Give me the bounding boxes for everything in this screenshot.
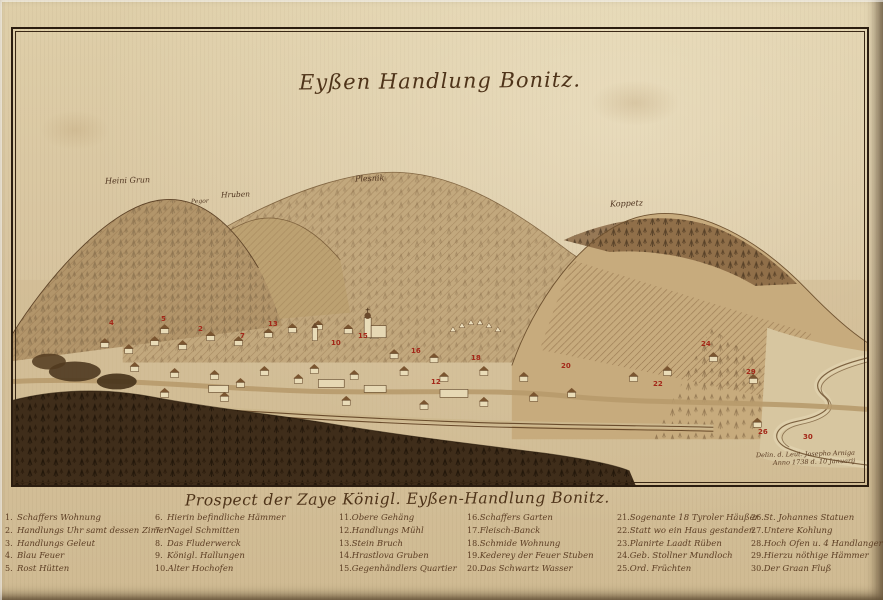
- legend-item-number: 23.: [617, 538, 630, 551]
- legend-item: 14.Hrastlova Gruben: [339, 550, 467, 563]
- legend-item: 28.Hoch Ofen u. 4 Handlangern: [751, 538, 881, 551]
- map-title: Eyßen Handlung Bonitz.: [13, 65, 867, 98]
- legend-item: 7.Nagel Schmitten: [155, 525, 339, 538]
- scanned-map-page: Eyßen Handlung Bonitz. Heini GrunPegorHr…: [0, 0, 883, 600]
- legend-item-text: Hierzu nöthige Hämmer: [764, 551, 869, 561]
- legend-columns: 1.Schaffers Wohnung2.Handlungs Uhr samt …: [5, 512, 881, 576]
- artist-signature: Delin. d. Leut. Josepho Arniga Anno 1738…: [756, 449, 855, 468]
- legend-column-4: 16.Schaffers Garten17.Fleisch-Banck18.Sc…: [467, 512, 617, 576]
- legend-item-number: 22.: [617, 525, 630, 538]
- legend-item: 27.Untere Kohlung: [751, 525, 881, 538]
- legend-item: 2.Handlungs Uhr samt dessen Zimer: [5, 525, 155, 538]
- legend-item: 11.Obere Gehäng: [339, 512, 467, 525]
- legend-item-text: Hoch Ofen u. 4 Handlangern: [764, 539, 883, 549]
- legend-item-text: Nagel Schmitten: [167, 526, 240, 536]
- legend-item-number: 17.: [467, 525, 480, 538]
- map-marker-number: 18: [471, 354, 481, 362]
- legend-item-text: Hierin befindliche Hämmer: [167, 513, 285, 523]
- legend-item-number: 15.: [339, 563, 352, 576]
- legend-item-text: Das Schwartz Wasser: [480, 564, 573, 574]
- legend-item-text: Königl. Hallungen: [167, 551, 245, 561]
- legend-item: 12.Handlungs Mühl: [339, 525, 467, 538]
- legend-item-text: Der Graan Fluß: [764, 564, 832, 574]
- legend-item: 19.Kederey der Feuer Stuben: [467, 550, 617, 563]
- legend-item-text: Stein Bruch: [352, 539, 403, 549]
- annotation-overlay: Eyßen Handlung Bonitz. Heini GrunPegorHr…: [13, 29, 867, 485]
- legend-item-text: Geb. Stollner Mundloch: [630, 551, 733, 561]
- legend-item-number: 4.: [5, 550, 17, 563]
- legend-item-number: 8.: [155, 538, 167, 551]
- legend-item-text: Schaffers Garten: [480, 513, 553, 523]
- legend-item-number: 30.: [751, 563, 764, 576]
- legend-item-number: 19.: [467, 550, 480, 563]
- legend-item-text: Kederey der Feuer Stuben: [480, 551, 594, 561]
- legend-item-text: Das Fluderwerck: [167, 539, 241, 549]
- legend-item-number: 14.: [339, 550, 352, 563]
- legend-item-text: Schmide Wohnung: [480, 539, 561, 549]
- hill-label: Hruben: [221, 189, 250, 199]
- legend-item-number: 7.: [155, 525, 167, 538]
- legend-item: 24.Geb. Stollner Mundloch: [617, 550, 751, 563]
- legend-item: 16.Schaffers Garten: [467, 512, 617, 525]
- legend-item-number: 25.: [617, 563, 630, 576]
- legend-item-text: Handlungs Uhr samt dessen Zimer: [17, 526, 168, 536]
- hill-label: Heini Grun: [105, 175, 150, 186]
- map-marker-number: 24: [701, 340, 711, 348]
- legend-item-number: 24.: [617, 550, 630, 563]
- legend-item-text: Statt wo ein Haus gestanden: [630, 526, 755, 536]
- legend-item-text: Alter Hochofen: [168, 564, 234, 574]
- legend-item-text: Planirte Laadt Rüben: [630, 539, 722, 549]
- drawing-frame: Eyßen Handlung Bonitz. Heini GrunPegorHr…: [11, 27, 869, 487]
- map-marker-number: 30: [803, 433, 813, 441]
- legend-item: 13.Stein Bruch: [339, 538, 467, 551]
- legend-item-number: 26.: [751, 512, 764, 525]
- legend-column-2: 6.Hierin befindliche Hämmer7.Nagel Schmi…: [155, 512, 339, 576]
- map-marker-number: 20: [561, 362, 571, 370]
- map-marker-number: 15: [358, 332, 368, 340]
- legend-item: 17.Fleisch-Banck: [467, 525, 617, 538]
- legend-item-number: 1.: [5, 512, 17, 525]
- legend-item: 21.Sogenante 18 Tyroler Häußer: [617, 512, 751, 525]
- legend-item-number: 9.: [155, 550, 167, 563]
- legend-column-1: 1.Schaffers Wohnung2.Handlungs Uhr samt …: [5, 512, 155, 576]
- legend-item-text: Hrastlova Gruben: [352, 551, 429, 561]
- legend-item-text: Sogenante 18 Tyroler Häußer: [630, 513, 759, 523]
- legend-item: 18.Schmide Wohnung: [467, 538, 617, 551]
- legend-title: Prospect der Zaye Königl. Eyßen-Handlung…: [0, 487, 795, 511]
- legend-column-3: 11.Obere Gehäng12.Handlungs Mühl13.Stein…: [339, 512, 467, 576]
- legend-item-text: Untere Kohlung: [764, 526, 833, 536]
- legend-item-text: Handlungs Geleut: [17, 539, 95, 549]
- legend-item-text: Rost Hütten: [17, 564, 69, 574]
- hill-label: Pegor: [191, 198, 209, 206]
- legend-item: 25.Ord. Früchten: [617, 563, 751, 576]
- legend-item-number: 5.: [5, 563, 17, 576]
- map-marker-number: 16: [411, 347, 421, 355]
- legend-column-5: 21.Sogenante 18 Tyroler Häußer22.Statt w…: [617, 512, 751, 576]
- legend-item: 20.Das Schwartz Wasser: [467, 563, 617, 576]
- map-marker-number: 12: [431, 378, 441, 386]
- legend-item-number: 27.: [751, 525, 764, 538]
- hill-label: Plesnik: [355, 173, 385, 183]
- legend-column-6: 26.St. Johannes Statuen27.Untere Kohlung…: [751, 512, 881, 576]
- legend-item-number: 18.: [467, 538, 480, 551]
- map-marker-number: 13: [268, 320, 278, 328]
- legend-item: 30.Der Graan Fluß: [751, 563, 881, 576]
- legend: Prospect der Zaye Königl. Eyßen-Handlung…: [0, 490, 883, 598]
- legend-item-text: Schaffers Wohnung: [17, 513, 101, 523]
- legend-item: 22.Statt wo ein Haus gestanden: [617, 525, 751, 538]
- legend-item-number: 20.: [467, 563, 480, 576]
- legend-item: 29.Hierzu nöthige Hämmer: [751, 550, 881, 563]
- legend-item-number: 16.: [467, 512, 480, 525]
- map-marker-number: 29: [746, 368, 756, 376]
- legend-item-number: 6.: [155, 512, 167, 525]
- legend-item: 3.Handlungs Geleut: [5, 538, 155, 551]
- legend-item: 6.Hierin befindliche Hämmer: [155, 512, 339, 525]
- legend-item-number: 2.: [5, 525, 17, 538]
- legend-item-number: 28.: [751, 538, 764, 551]
- legend-item-number: 3.: [5, 538, 17, 551]
- legend-item: 15.Gegenhändlers Quartier: [339, 563, 467, 576]
- legend-item-text: Obere Gehäng: [352, 513, 415, 523]
- legend-item: 1.Schaffers Wohnung: [5, 512, 155, 525]
- legend-item-number: 12.: [339, 525, 352, 538]
- legend-item-text: Fleisch-Banck: [480, 526, 541, 536]
- map-marker-number: 7: [240, 332, 245, 340]
- map-marker-number: 10: [331, 339, 341, 347]
- map-marker-number: 5: [161, 315, 166, 323]
- legend-item-text: Gegenhändlers Quartier: [352, 564, 457, 574]
- legend-item: 10.Alter Hochofen: [155, 563, 339, 576]
- map-marker-number: 2: [198, 325, 203, 333]
- map-marker-number: 22: [653, 380, 663, 388]
- legend-item-text: St. Johannes Statuen: [764, 513, 854, 523]
- legend-item: 4.Blau Feuer: [5, 550, 155, 563]
- legend-item-number: 21.: [617, 512, 630, 525]
- legend-item-number: 13.: [339, 538, 352, 551]
- legend-item: 9.Königl. Hallungen: [155, 550, 339, 563]
- legend-item-number: 11.: [339, 512, 352, 525]
- legend-item: 26.St. Johannes Statuen: [751, 512, 881, 525]
- map-marker-number: 4: [109, 319, 114, 327]
- legend-item-number: 10.: [155, 563, 168, 576]
- legend-item: 5.Rost Hütten: [5, 563, 155, 576]
- hill-label: Koppetz: [610, 198, 643, 208]
- legend-item-text: Handlungs Mühl: [352, 526, 424, 536]
- legend-item-text: Blau Feuer: [17, 551, 64, 561]
- map-marker-number: 26: [758, 428, 768, 436]
- legend-item: 8.Das Fluderwerck: [155, 538, 339, 551]
- legend-item-number: 29.: [751, 550, 764, 563]
- legend-item: 23.Planirte Laadt Rüben: [617, 538, 751, 551]
- legend-item-text: Ord. Früchten: [630, 564, 691, 574]
